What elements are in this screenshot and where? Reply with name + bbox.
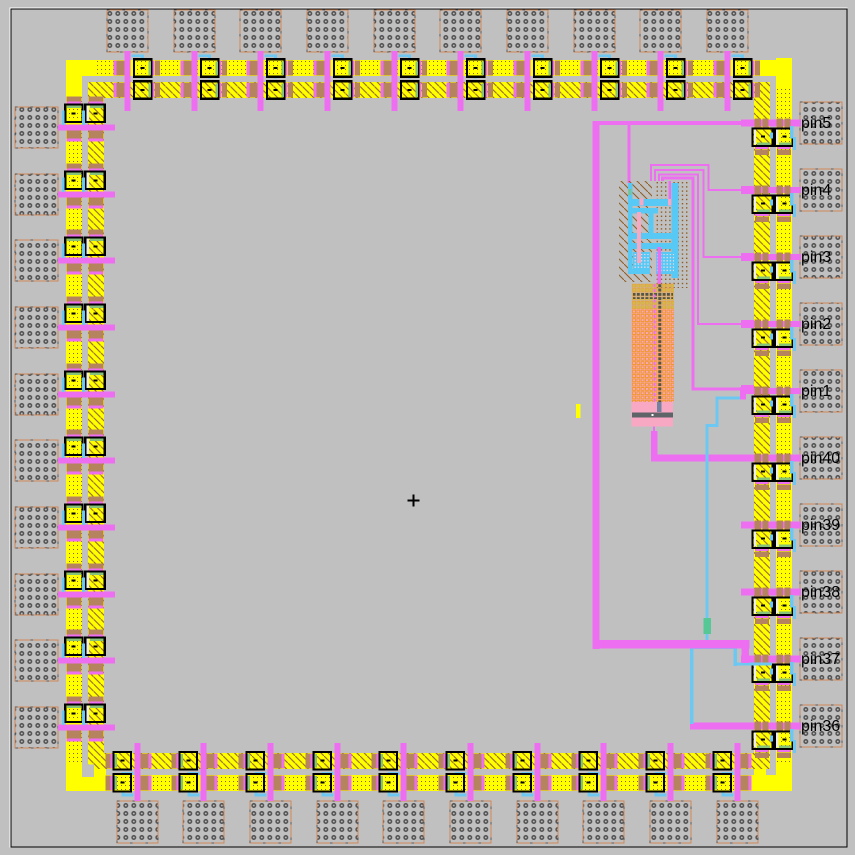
svg-text:pin37: pin37 <box>801 651 840 668</box>
svg-text:pin36: pin36 <box>801 718 840 735</box>
svg-text:pin3: pin3 <box>801 249 831 266</box>
svg-text:pin38: pin38 <box>801 584 840 601</box>
svg-text:pin5: pin5 <box>801 115 831 132</box>
svg-text:pin4: pin4 <box>801 182 831 199</box>
svg-text:pin1: pin1 <box>801 383 831 400</box>
svg-text:pin40: pin40 <box>801 450 840 467</box>
svg-text:pin2: pin2 <box>801 316 831 333</box>
svg-text:pin39: pin39 <box>801 517 840 534</box>
